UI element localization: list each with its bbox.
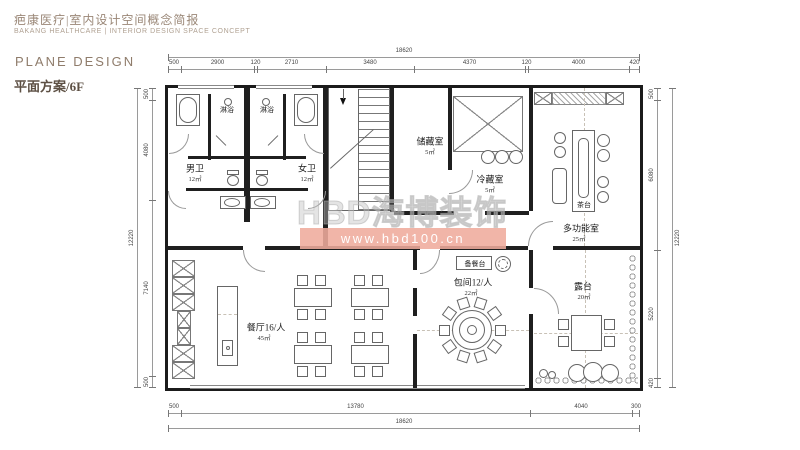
room-area-storage: 5㎡ — [425, 146, 435, 156]
chair — [315, 366, 326, 377]
wall-segment — [248, 156, 306, 159]
chair — [315, 309, 326, 320]
room-label-shower-right: 淋浴 — [260, 105, 274, 115]
dim-tick — [632, 410, 633, 417]
island-sink-drain — [226, 346, 230, 350]
chair — [354, 332, 365, 343]
presentation-subtitle: BAKANG HEALTHCARE | INTERIOR DESIGN SPAC… — [14, 28, 250, 35]
door-arc — [304, 134, 324, 154]
watermark-url: www.hbd100.cn — [300, 228, 506, 249]
chair — [597, 191, 609, 203]
cold-unit — [481, 150, 495, 164]
cabinet — [172, 362, 195, 379]
plant-pot-inner — [498, 259, 508, 269]
chair — [372, 332, 383, 343]
chair — [372, 309, 383, 320]
chair — [297, 309, 308, 320]
shower-door-line — [268, 135, 279, 146]
chair — [297, 366, 308, 377]
chair — [297, 275, 308, 286]
sink-basin — [254, 198, 270, 207]
dim-seg: 300 — [628, 404, 644, 410]
bathtub-basin — [297, 97, 315, 123]
dim-tick — [168, 425, 169, 432]
room-area-male-wc: 12㎡ — [189, 173, 202, 183]
dim-seg: 13780 — [181, 404, 530, 410]
chair — [372, 366, 383, 377]
wall-segment — [529, 314, 533, 388]
stair-direction-arrow — [340, 98, 346, 105]
wall-segment — [529, 250, 533, 288]
dim-seg: 500 — [144, 377, 150, 387]
dim-tick — [181, 66, 182, 73]
cabinet — [172, 345, 195, 362]
dining-table — [294, 288, 332, 307]
bush — [583, 362, 603, 382]
dim-seg: 4000 — [528, 60, 629, 66]
dim-tick — [654, 378, 661, 379]
watermark-logo: HBD海博装饰 — [297, 186, 508, 234]
dim-tick — [669, 387, 676, 388]
window — [190, 385, 525, 389]
room-area-multi-function: 25㎡ — [573, 233, 586, 243]
dim-seg: 420 — [626, 60, 643, 66]
door-arc — [169, 134, 189, 154]
wall-segment — [186, 188, 246, 191]
section-label-cn: 平面方案/6F — [14, 76, 84, 95]
dim-total-top: 18620 — [168, 48, 640, 54]
wall-segment — [413, 288, 417, 316]
dim-tick — [181, 410, 182, 417]
chair — [554, 132, 566, 144]
dim-total-right: 12220 — [675, 230, 681, 247]
dim-tick — [639, 425, 640, 432]
dim-seg: 500 — [649, 89, 655, 99]
cabinet — [172, 260, 195, 277]
cabinet — [534, 92, 552, 105]
room-label-shower-left: 淋浴 — [220, 105, 234, 115]
door-arc — [420, 250, 440, 274]
chair — [554, 146, 566, 158]
toilet-bowl — [256, 175, 268, 186]
chair — [456, 296, 470, 310]
section-label-en: PLANE DESIGN — [15, 54, 135, 69]
chair — [487, 306, 502, 321]
dim-tick — [528, 66, 529, 73]
dim-total-bottom: 18620 — [168, 419, 640, 425]
bush — [601, 364, 619, 382]
dim-tick — [168, 66, 169, 73]
chair — [558, 336, 569, 347]
chair — [297, 332, 308, 343]
dim-tick — [639, 410, 640, 417]
chair — [354, 366, 365, 377]
dim-tick — [669, 88, 676, 89]
window — [178, 85, 234, 89]
island-counter-line — [218, 314, 237, 315]
shower-door-line — [216, 135, 227, 146]
wall-segment — [413, 334, 417, 388]
cabinet-run — [552, 92, 606, 105]
wall-segment — [168, 246, 243, 250]
serving-counter: 备餐台 — [456, 256, 492, 270]
dim-seg: 6080 — [649, 168, 655, 181]
door-arc — [168, 191, 186, 209]
wall-segment — [553, 246, 640, 250]
door-arc — [528, 221, 553, 246]
watermark-band: www.hbd100.cn — [300, 228, 506, 249]
bathtub-basin — [179, 97, 197, 123]
dim-seg: 3480 — [326, 60, 414, 66]
cabinet — [606, 92, 624, 105]
presentation-title: 疤康医疗|室内设计空间概念简报 — [14, 11, 199, 28]
planting-border — [628, 254, 638, 382]
door-arc — [534, 288, 559, 314]
wall-segment — [529, 88, 533, 211]
lazy-susan — [467, 325, 477, 335]
dim-tick — [149, 200, 156, 201]
chair — [597, 176, 609, 188]
dim-tick — [168, 410, 169, 417]
dim-seg: 4040 — [530, 404, 632, 410]
room-area-terrace: 20㎡ — [578, 291, 591, 301]
slide: { "header": { "title_cn": "疤康医疗|室内设计空间概念… — [0, 0, 800, 450]
wall-segment — [188, 156, 246, 159]
chair — [604, 336, 615, 347]
dim-tick — [149, 100, 156, 101]
room-area-female-wc: 12㎡ — [301, 173, 314, 183]
room-label-serving-counter: 备餐台 — [465, 259, 486, 269]
cabinet — [177, 328, 191, 345]
dim-seg: 5220 — [649, 307, 655, 320]
dim-line — [657, 88, 658, 388]
chair — [604, 319, 615, 330]
dim-tick — [414, 66, 415, 73]
chair — [354, 275, 365, 286]
dim-total-left: 12220 — [129, 230, 135, 247]
dim-line — [168, 413, 640, 414]
dim-seg: 4080 — [144, 143, 150, 156]
chair — [597, 134, 610, 147]
wall-segment — [448, 88, 452, 170]
chair — [495, 325, 506, 336]
chair — [372, 275, 383, 286]
dim-seg: 7140 — [144, 281, 150, 294]
dim-seg: 4370 — [414, 60, 525, 66]
dim-tick — [149, 376, 156, 377]
dim-line — [152, 88, 153, 388]
terrace-table — [571, 315, 602, 351]
dim-tick — [149, 88, 156, 89]
bush — [539, 369, 548, 378]
dim-line — [672, 88, 673, 388]
chair — [315, 275, 326, 286]
cabinet — [172, 277, 195, 294]
stair-arrow-line — [343, 89, 344, 99]
cabinet — [172, 294, 195, 311]
dim-line — [168, 69, 640, 70]
room-label-tea-table: 茶台 — [576, 200, 592, 210]
wall-segment — [283, 94, 286, 160]
cold-unit — [509, 150, 523, 164]
dim-tick — [530, 410, 531, 417]
dim-tick — [134, 387, 141, 388]
chair — [487, 339, 502, 354]
dim-tick — [149, 387, 156, 388]
toilet-bowl — [227, 175, 239, 186]
bush — [548, 371, 556, 379]
chair — [439, 325, 450, 336]
dining-table — [351, 345, 389, 364]
dim-tick — [134, 88, 141, 89]
dim-seg: 500 — [144, 89, 150, 99]
chair — [558, 319, 569, 330]
tea-table-top — [578, 138, 589, 198]
dim-line — [168, 57, 640, 58]
dining-table — [294, 345, 332, 364]
dim-tick — [629, 66, 630, 73]
chair — [474, 296, 488, 310]
dim-tick — [326, 66, 327, 73]
wall-segment — [208, 94, 211, 160]
cabinet — [177, 311, 191, 328]
storage-shelving — [453, 96, 523, 152]
wall-segment — [413, 250, 417, 270]
dim-tick — [654, 88, 661, 89]
dim-seg: 420 — [649, 378, 655, 388]
dim-tick — [639, 66, 640, 73]
chair — [315, 332, 326, 343]
dim-line — [137, 88, 138, 388]
dim-tick — [254, 66, 255, 73]
door-arc — [243, 250, 265, 272]
dim-tick — [525, 66, 526, 73]
dim-seg: 2710 — [257, 60, 326, 66]
cold-unit — [495, 150, 509, 164]
chair — [597, 149, 610, 162]
dining-table — [351, 288, 389, 307]
dim-tick — [257, 66, 258, 73]
dim-tick — [654, 250, 661, 251]
room-area-dining: 45㎡ — [258, 332, 271, 342]
dim-tick — [654, 100, 661, 101]
chair — [354, 309, 365, 320]
window — [256, 85, 312, 89]
dim-seg: 2900 — [181, 60, 254, 66]
bench-seat — [552, 168, 567, 204]
chair — [456, 350, 470, 364]
sink-basin — [224, 198, 240, 207]
dim-line — [168, 428, 640, 429]
chair — [474, 350, 488, 364]
dim-tick — [654, 387, 661, 388]
